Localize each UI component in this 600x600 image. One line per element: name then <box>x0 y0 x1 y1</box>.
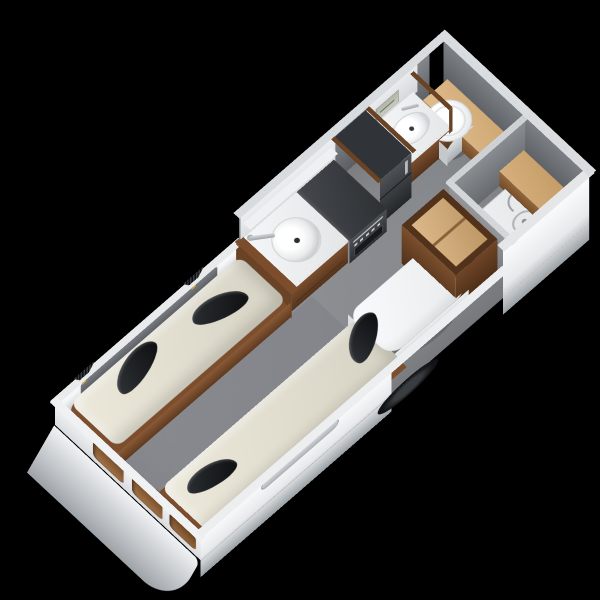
sink-drain <box>408 126 415 132</box>
wardrobe-shelf-edge <box>432 217 466 246</box>
sink-drain <box>293 237 301 245</box>
screenshot-canvas: { "scene": { "background": "#000000", "s… <box>0 0 600 600</box>
fridge-door-seam <box>380 172 412 201</box>
caravan-hull <box>55 88 589 561</box>
fridge-handle <box>405 160 408 176</box>
bathroom-faucet <box>401 103 419 111</box>
black-background <box>0 0 600 600</box>
